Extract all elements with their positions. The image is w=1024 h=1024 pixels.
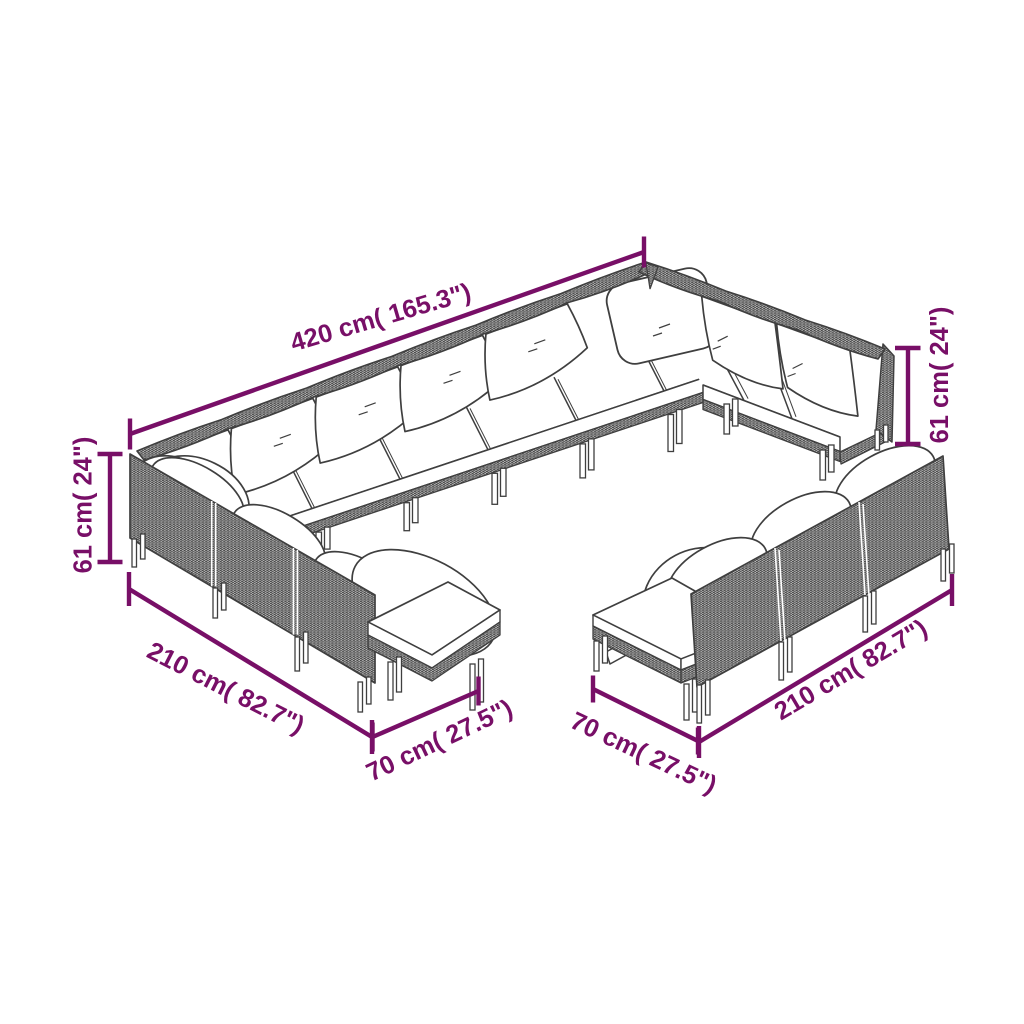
svg-text:61 cm( 24"): 61 cm( 24") [70,437,98,574]
svg-text:210 cm( 82.7"): 210 cm( 82.7") [143,637,309,740]
svg-text:61 cm( 24"): 61 cm( 24") [926,307,954,444]
